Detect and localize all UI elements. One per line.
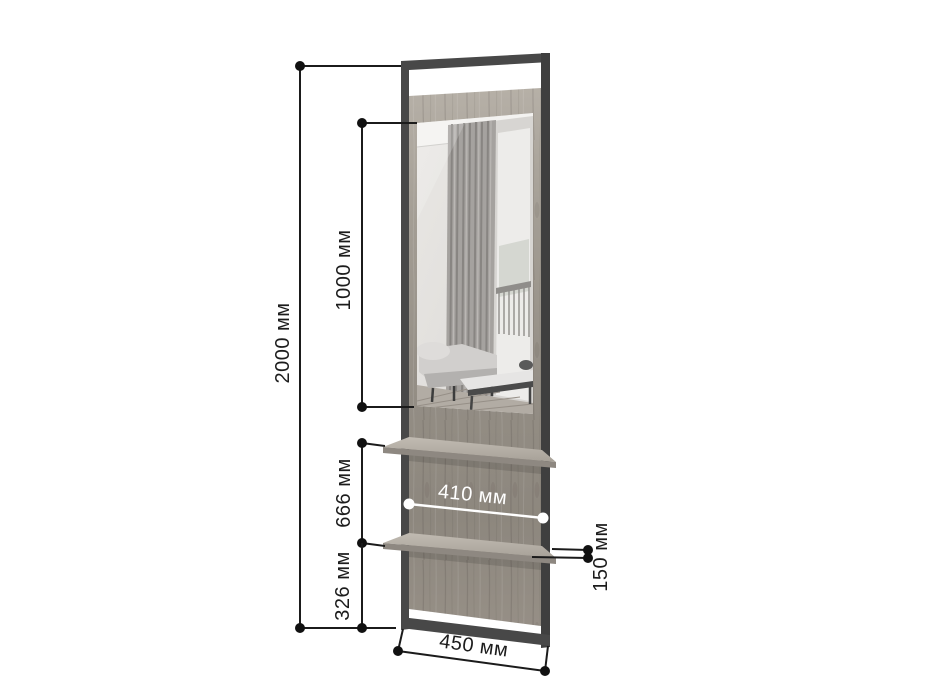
label-shelf-section: 666 мм (333, 458, 355, 527)
dimension-lower-section: 326 мм (332, 543, 367, 633)
diagram-canvas: 2000 мм 1000 мм 666 мм 326 мм 410 мм (0, 0, 934, 700)
dimension-shelf-section: 666 мм (333, 438, 385, 548)
label-mirror-height: 1000 мм (333, 229, 355, 310)
dimension-total-height: 2000 мм (272, 61, 401, 633)
frame-top-bar (401, 53, 550, 70)
furniture (383, 53, 556, 648)
furniture-dimension-diagram: 2000 мм 1000 мм 666 мм 326 мм 410 мм (0, 0, 934, 700)
label-shelf-depth: 150 мм (590, 522, 612, 591)
label-lower-section: 326 мм (332, 551, 354, 620)
mirror (416, 113, 533, 414)
label-total-height: 2000 мм (272, 302, 294, 383)
